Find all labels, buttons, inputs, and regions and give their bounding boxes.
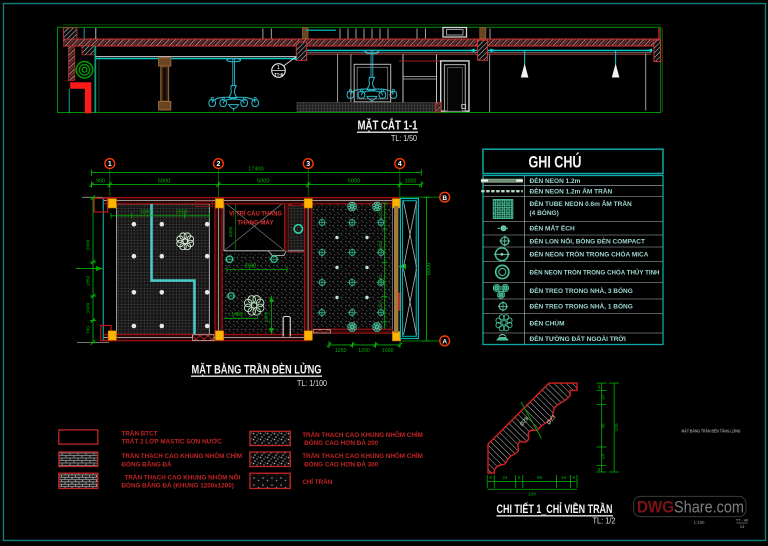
svg-text:1500: 1500 <box>378 241 384 252</box>
svg-text:24: 24 <box>601 454 606 460</box>
svg-text:ĐÈN NEON TRÒN TRONG CHÓA THỦY: ĐÈN NEON TRÒN TRONG CHÓA THỦY TINH <box>530 267 660 276</box>
svg-text:ĐÈN LON NỔI, BÓNG ĐÈN COMPACT: ĐÈN LON NỔI, BÓNG ĐÈN COMPACT <box>530 236 645 245</box>
svg-text:4: 4 <box>398 161 402 168</box>
svg-text:Share.com: Share.com <box>674 499 744 517</box>
svg-text:16: 16 <box>561 475 567 480</box>
svg-text:8000: 8000 <box>427 263 433 275</box>
svg-text:1600: 1600 <box>86 302 92 313</box>
svg-text:A: A <box>442 339 447 346</box>
svg-text:1480: 1480 <box>231 312 243 318</box>
svg-text:5000: 5000 <box>348 178 360 184</box>
svg-text:50: 50 <box>537 475 543 480</box>
svg-text:2500: 2500 <box>176 210 188 216</box>
svg-text:1800: 1800 <box>264 311 270 322</box>
svg-text:8: 8 <box>489 475 492 480</box>
svg-text:GHI CHÚ: GHI CHÚ <box>529 153 582 172</box>
svg-text:1200: 1200 <box>358 348 370 354</box>
svg-text:1000: 1000 <box>140 210 152 216</box>
svg-text:1:100: 1:100 <box>694 520 706 525</box>
svg-text:1000: 1000 <box>405 178 417 184</box>
svg-text:MẶT BẰNG TRẦN ĐÈN TẦNG LỬNG: MẶT BẰNG TRẦN ĐÈN TẦNG LỬNG <box>682 427 741 434</box>
svg-text:THANG MÁY: THANG MÁY <box>237 219 273 226</box>
svg-text:TRÁT 2 LỚP MASTIC SƠN NƯỚC: TRÁT 2 LỚP MASTIC SƠN NƯỚC <box>122 437 223 446</box>
svg-text:TT - 40: TT - 40 <box>736 519 748 523</box>
svg-text:ĐÓNG CAO HƠN ĐÀ 300: ĐÓNG CAO HƠN ĐÀ 300 <box>304 459 378 468</box>
svg-text:8: 8 <box>598 385 601 390</box>
svg-text:10: 10 <box>601 395 606 401</box>
svg-text:TL: 1/100: TL: 1/100 <box>297 379 327 388</box>
svg-text:2000: 2000 <box>86 239 92 250</box>
svg-text:24: 24 <box>502 475 508 480</box>
svg-text:TL: 1/2: TL: 1/2 <box>593 517 616 526</box>
svg-text:ĐÈN CHÙM: ĐÈN CHÙM <box>530 319 565 328</box>
svg-text:48: 48 <box>601 423 606 429</box>
svg-text:5000: 5000 <box>257 178 269 184</box>
svg-text:2680: 2680 <box>245 263 257 269</box>
svg-text:1800: 1800 <box>378 275 384 286</box>
svg-text:1400: 1400 <box>378 208 384 219</box>
svg-text:1: 1 <box>108 161 112 168</box>
svg-text:2: 2 <box>216 161 220 168</box>
svg-text:17400: 17400 <box>248 167 264 173</box>
svg-text:B: B <box>442 195 447 202</box>
svg-text:MẶT CẮT 1-1: MẶT CẮT 1-1 <box>358 118 418 133</box>
svg-text:ĐÈN NEON 1.2m: ĐÈN NEON 1.2m <box>530 176 581 185</box>
svg-text:1000: 1000 <box>382 348 394 354</box>
svg-text:3: 3 <box>306 161 310 168</box>
svg-text:TL: 1/50: TL: 1/50 <box>391 134 417 143</box>
svg-text:3300: 3300 <box>228 226 234 237</box>
svg-text:100: 100 <box>614 423 620 431</box>
svg-text:CHI TIẾT 1_CHỈ VIỀN TRẦN: CHI TIẾT 1_CHỈ VIỀN TRẦN <box>497 501 613 516</box>
svg-text:ĐÓNG BẰNG ĐÁ (KHUNG 1200x1200: ĐÓNG BẰNG ĐÁ (KHUNG 1200x1200) <box>122 481 234 490</box>
svg-text:VỊ TRÍ CẦU THANG: VỊ TRÍ CẦU THANG <box>229 209 282 217</box>
svg-text:ĐÓNG CAO HƠN ĐÀ 200: ĐÓNG CAO HƠN ĐÀ 200 <box>304 438 378 447</box>
svg-text:ĐÓNG BẰNG ĐÁ: ĐÓNG BẰNG ĐÁ <box>122 459 172 468</box>
svg-text:1220: 1220 <box>378 300 384 311</box>
svg-text:TT-8: TT-8 <box>274 72 283 77</box>
svg-text:ĐÈN TREO TRONG NHÀ, 1 BÓNG: ĐÈN TREO TRONG NHÀ, 1 BÓNG <box>530 302 633 311</box>
svg-text:13: 13 <box>740 525 744 529</box>
svg-text:700: 700 <box>86 326 92 334</box>
svg-text:DWG: DWG <box>637 499 674 517</box>
svg-text:8: 8 <box>572 475 575 480</box>
svg-text:(4 BÓNG): (4 BÓNG) <box>530 208 559 217</box>
svg-text:100: 100 <box>528 491 536 497</box>
svg-text:ĐÈN NEON TRÒN TRONG CHÓA MICA: ĐÈN NEON TRÒN TRONG CHÓA MICA <box>530 250 649 259</box>
svg-text:8: 8 <box>518 475 521 480</box>
svg-text:5000: 5000 <box>158 178 170 184</box>
svg-text:ĐÈN TREO TRONG NHÀ, 3 BÓNG: ĐÈN TREO TRONG NHÀ, 3 BÓNG <box>530 286 633 295</box>
svg-text:1250: 1250 <box>335 348 347 354</box>
svg-text:1850: 1850 <box>86 275 92 286</box>
svg-text:1: 1 <box>277 65 280 71</box>
svg-text:900: 900 <box>96 178 105 184</box>
svg-text:8: 8 <box>598 467 601 472</box>
svg-text:MẶT BẰNG TRẦN ĐÈN LỬNG: MẶT BẰNG TRẦN ĐÈN LỬNG <box>192 363 322 377</box>
